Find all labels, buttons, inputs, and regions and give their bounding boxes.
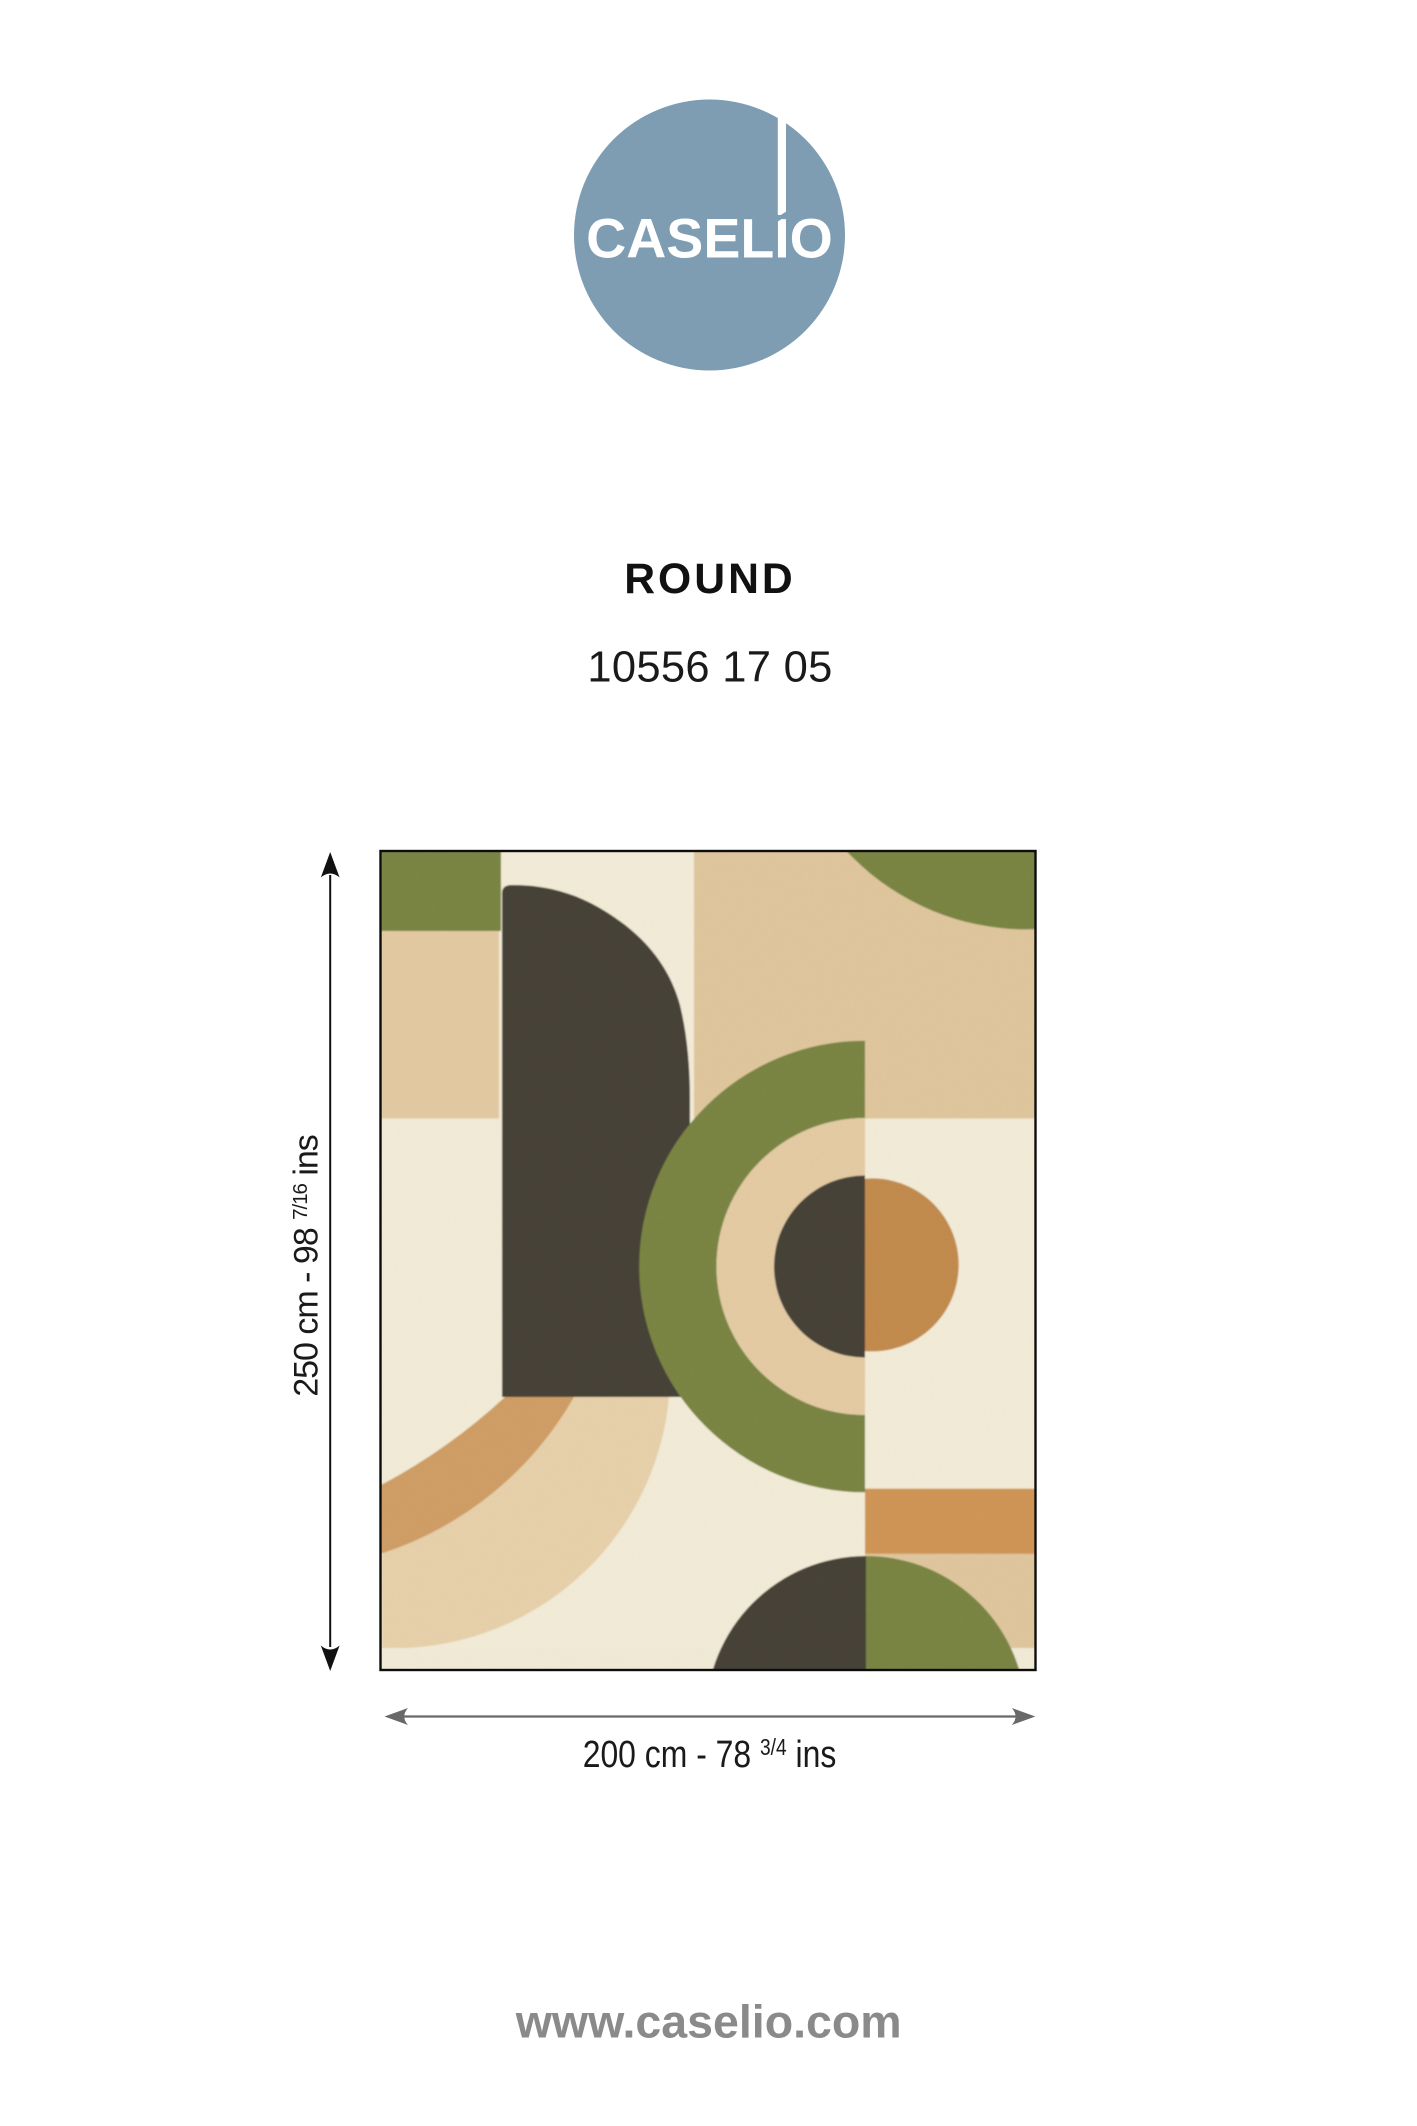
svg-text:200 cm - 78 3/4 ins: 200 cm - 78 3/4 ins [583,1733,837,1775]
svg-text:10556 17 05: 10556 17 05 [587,643,832,691]
svg-text:CASELIO: CASELIO [586,207,833,269]
svg-text:www.caselio.com: www.caselio.com [515,1995,902,2047]
svg-text:ROUND: ROUND [624,555,796,603]
svg-text:250 cm - 98 7/16 ins: 250 cm - 98 7/16 ins [288,1135,326,1397]
